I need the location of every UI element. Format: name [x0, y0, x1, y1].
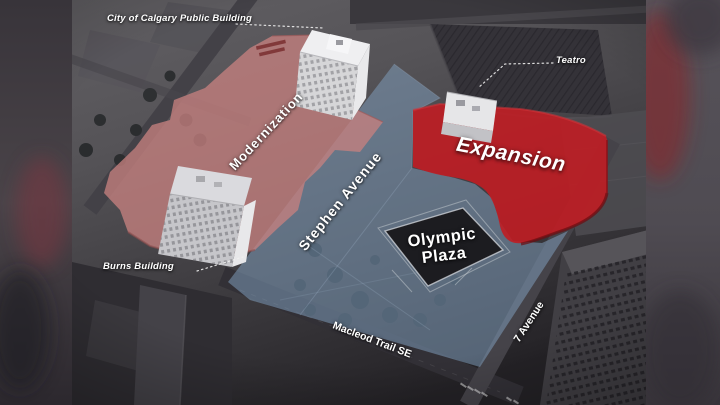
label-city-public-building: City of Calgary Public Building — [107, 13, 252, 24]
aerial-map-canvas — [0, 0, 720, 405]
label-teatro: Teatro — [556, 55, 586, 66]
news-graphic-olympic-plaza-map: City of Calgary Public Building Teatro B… — [0, 0, 720, 405]
letterbox-left — [0, 0, 72, 405]
vignette — [0, 0, 720, 405]
label-burns-building: Burns Building — [103, 261, 174, 272]
